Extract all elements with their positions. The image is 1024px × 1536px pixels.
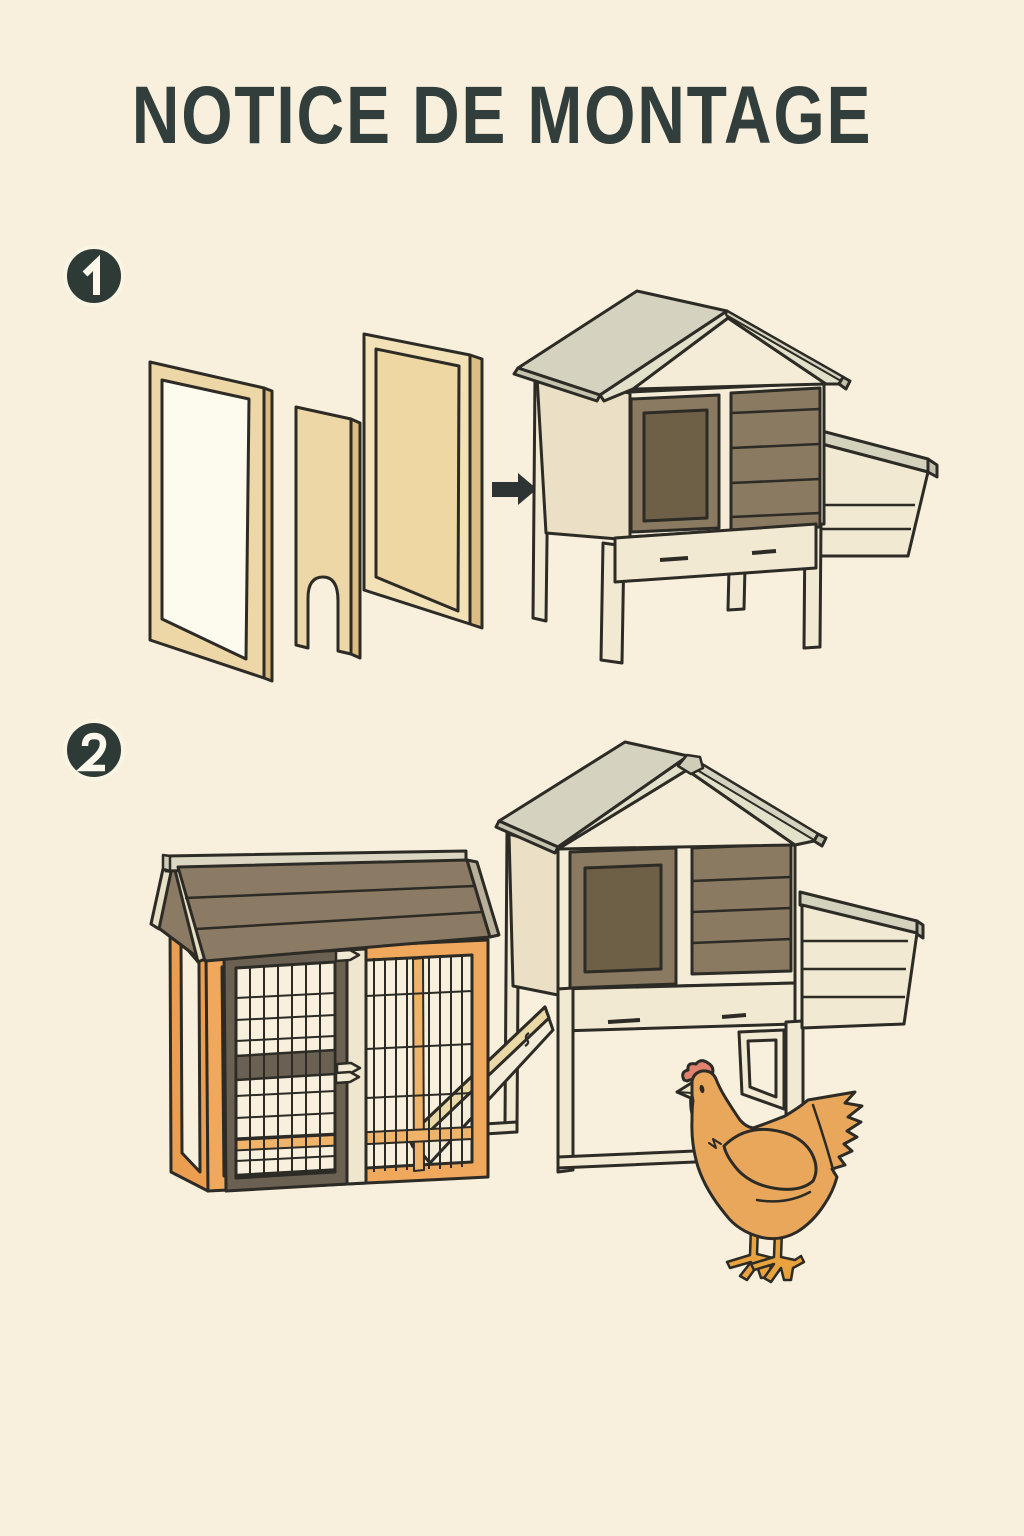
svg-text:NOTICE DE MONTAGE: NOTICE DE MONTAGE xyxy=(132,69,873,160)
